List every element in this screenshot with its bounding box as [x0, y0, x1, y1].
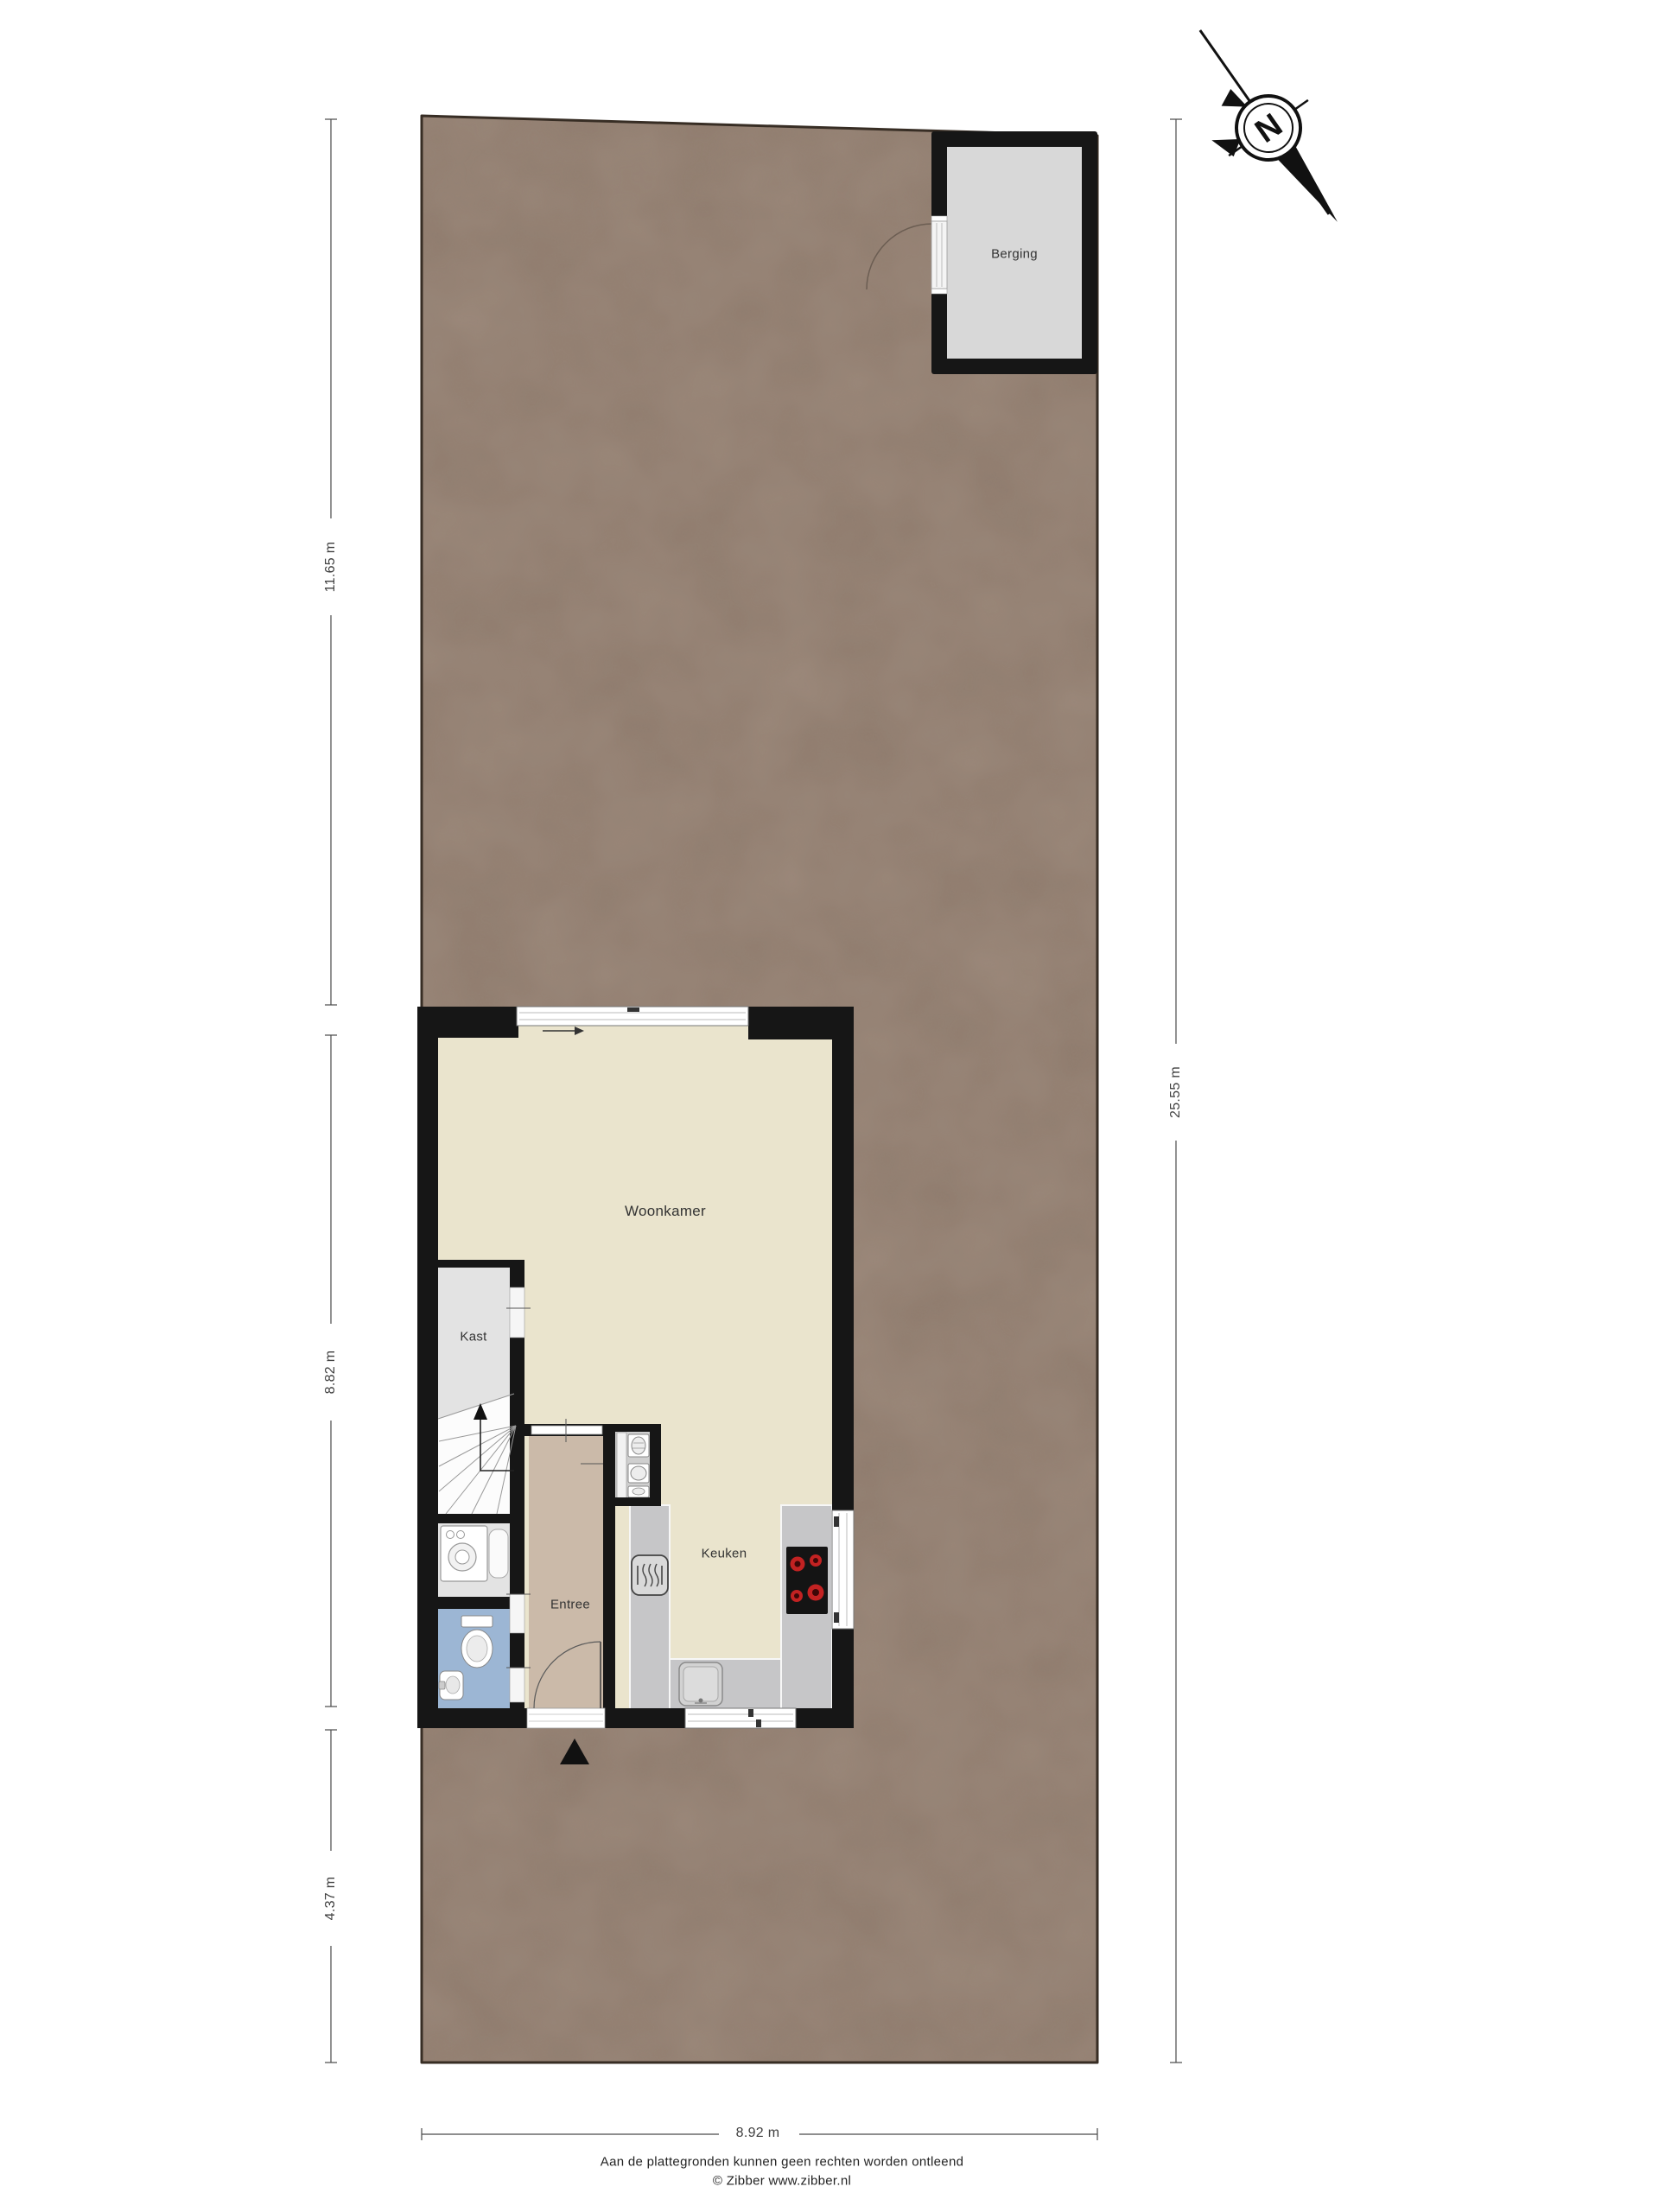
kitchen-side-window — [832, 1510, 854, 1629]
hand-basin-icon — [439, 1671, 463, 1700]
north-arrow-icon: N — [1156, 3, 1375, 254]
berging-label: Berging — [991, 247, 1038, 262]
bathroom-door — [510, 1594, 524, 1633]
dim-left-middle-label: 8.82 m — [323, 1351, 339, 1395]
kitchen-rear-window — [685, 1708, 796, 1728]
dim-right-label: 25.55 m — [1168, 1066, 1184, 1118]
dim-bottom-label: 8.92 m — [736, 2126, 780, 2141]
toilet-door — [510, 1668, 524, 1702]
heater-icon — [632, 1555, 668, 1595]
copyright-text: © Zibber www.zibber.nl — [713, 2174, 851, 2189]
washing-machine-icon — [441, 1526, 487, 1581]
disclaimer-text: Aan de plattegronden kunnen geen rechten… — [601, 2155, 963, 2170]
kast-label: Kast — [460, 1330, 486, 1344]
berging-door — [931, 221, 947, 289]
floorplan-drawing: N — [0, 0, 1659, 2212]
woonkamer-label: Woonkamer — [625, 1203, 706, 1220]
dim-left-top-label: 11.65 m — [323, 542, 339, 593]
kitchen-counter-left — [630, 1505, 670, 1709]
entree-label: Entree — [550, 1598, 590, 1612]
entree-floor — [529, 1434, 608, 1711]
cooktop-icon — [786, 1547, 828, 1614]
toilet-icon — [461, 1616, 493, 1668]
cv-appliance-icon — [628, 1464, 649, 1497]
kast-door — [510, 1287, 524, 1338]
bathroom-counter — [489, 1529, 508, 1578]
boiler-appliance-icon — [628, 1434, 649, 1457]
floorplan-page: N Berging Woonkamer Kast Entree Keuken 1… — [0, 0, 1659, 2212]
interior-window — [531, 1426, 602, 1434]
keuken-label: Keuken — [702, 1547, 747, 1561]
kitchen-sink-icon — [679, 1662, 722, 1706]
dim-left-bottom-label: 4.37 m — [323, 1877, 339, 1921]
